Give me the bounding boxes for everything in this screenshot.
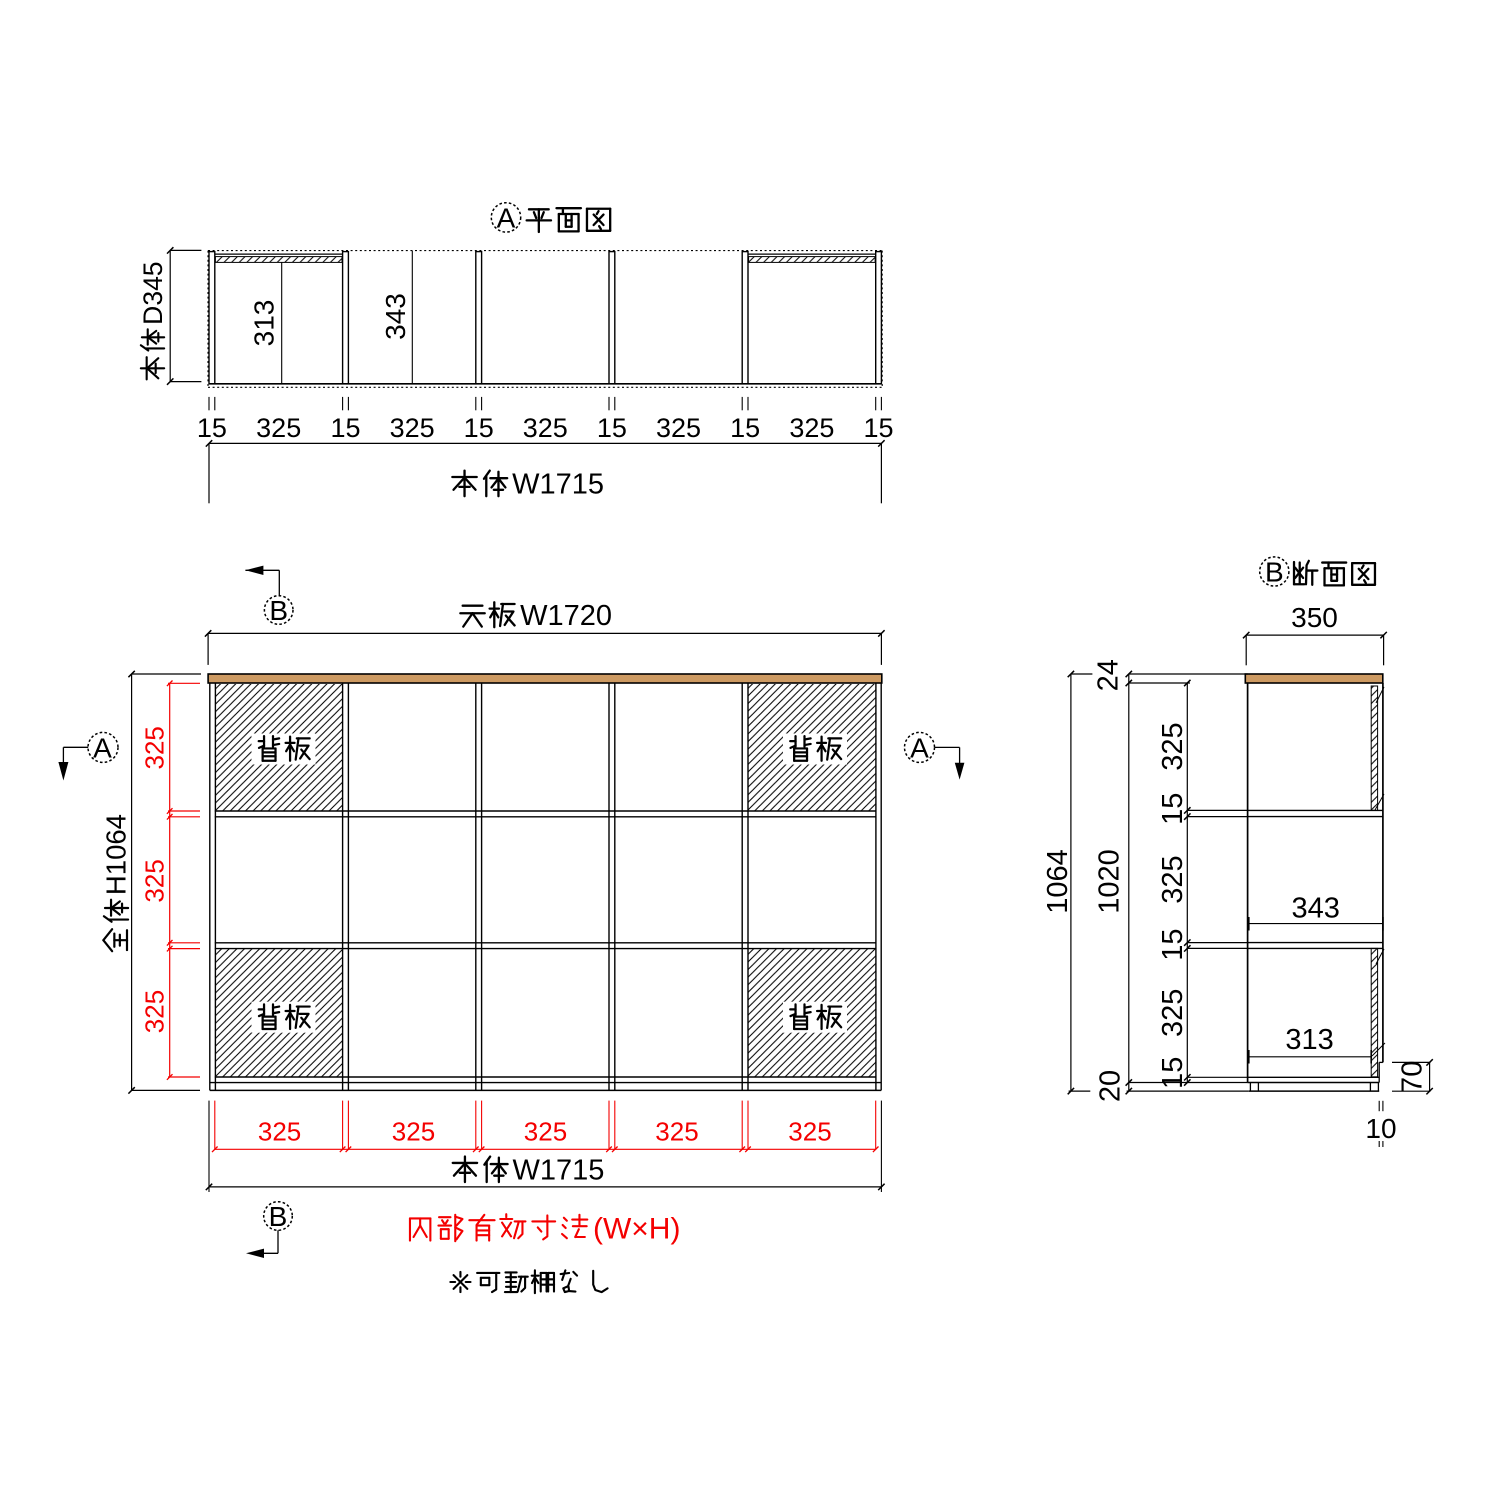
svg-text:W1715: W1715	[512, 1155, 604, 1187]
svg-text:15: 15	[330, 413, 360, 443]
svg-text:15: 15	[197, 413, 227, 443]
svg-text:B: B	[269, 595, 288, 626]
svg-text:1020: 1020	[1094, 849, 1126, 914]
svg-text:325: 325	[1157, 855, 1189, 903]
svg-text:325: 325	[140, 990, 170, 1033]
svg-text:325: 325	[1157, 722, 1189, 770]
svg-text:(W×H): (W×H)	[593, 1213, 680, 1246]
svg-text:24: 24	[1093, 659, 1125, 691]
svg-text:325: 325	[140, 859, 170, 902]
svg-text:325: 325	[258, 1116, 301, 1146]
svg-text:325: 325	[655, 1116, 698, 1146]
svg-text:10: 10	[1365, 1113, 1396, 1144]
svg-text:325: 325	[789, 413, 834, 443]
svg-text:15: 15	[730, 413, 760, 443]
svg-text:15: 15	[1157, 928, 1189, 960]
svg-text:15: 15	[1157, 1057, 1189, 1089]
svg-text:H1064: H1064	[101, 814, 132, 895]
svg-text:D345: D345	[138, 261, 168, 324]
svg-text:15: 15	[1157, 793, 1189, 825]
svg-text:15: 15	[864, 413, 894, 443]
svg-text:A: A	[497, 203, 516, 234]
svg-text:A: A	[93, 733, 112, 764]
svg-text:20: 20	[1095, 1070, 1127, 1102]
svg-text:325: 325	[656, 413, 701, 443]
svg-text:W1720: W1720	[520, 600, 612, 632]
svg-text:15: 15	[464, 413, 494, 443]
svg-text:325: 325	[524, 1116, 567, 1146]
svg-text:70: 70	[1397, 1061, 1429, 1093]
svg-text:15: 15	[597, 413, 627, 443]
svg-text:325: 325	[523, 413, 568, 443]
svg-text:325: 325	[140, 726, 170, 769]
svg-text:325: 325	[788, 1116, 831, 1146]
svg-text:313: 313	[249, 300, 280, 347]
svg-text:325: 325	[1157, 989, 1189, 1037]
svg-text:325: 325	[390, 413, 435, 443]
svg-text:B: B	[1265, 557, 1284, 588]
svg-text:350: 350	[1291, 602, 1338, 633]
svg-text:343: 343	[1292, 893, 1340, 925]
svg-text:343: 343	[380, 293, 411, 340]
svg-text:B: B	[269, 1201, 288, 1232]
svg-text:W1715: W1715	[512, 469, 604, 501]
svg-text:325: 325	[256, 413, 301, 443]
svg-text:313: 313	[1285, 1024, 1333, 1056]
svg-text:A: A	[910, 733, 929, 764]
svg-text:325: 325	[392, 1116, 435, 1146]
svg-text:1064: 1064	[1042, 849, 1074, 914]
